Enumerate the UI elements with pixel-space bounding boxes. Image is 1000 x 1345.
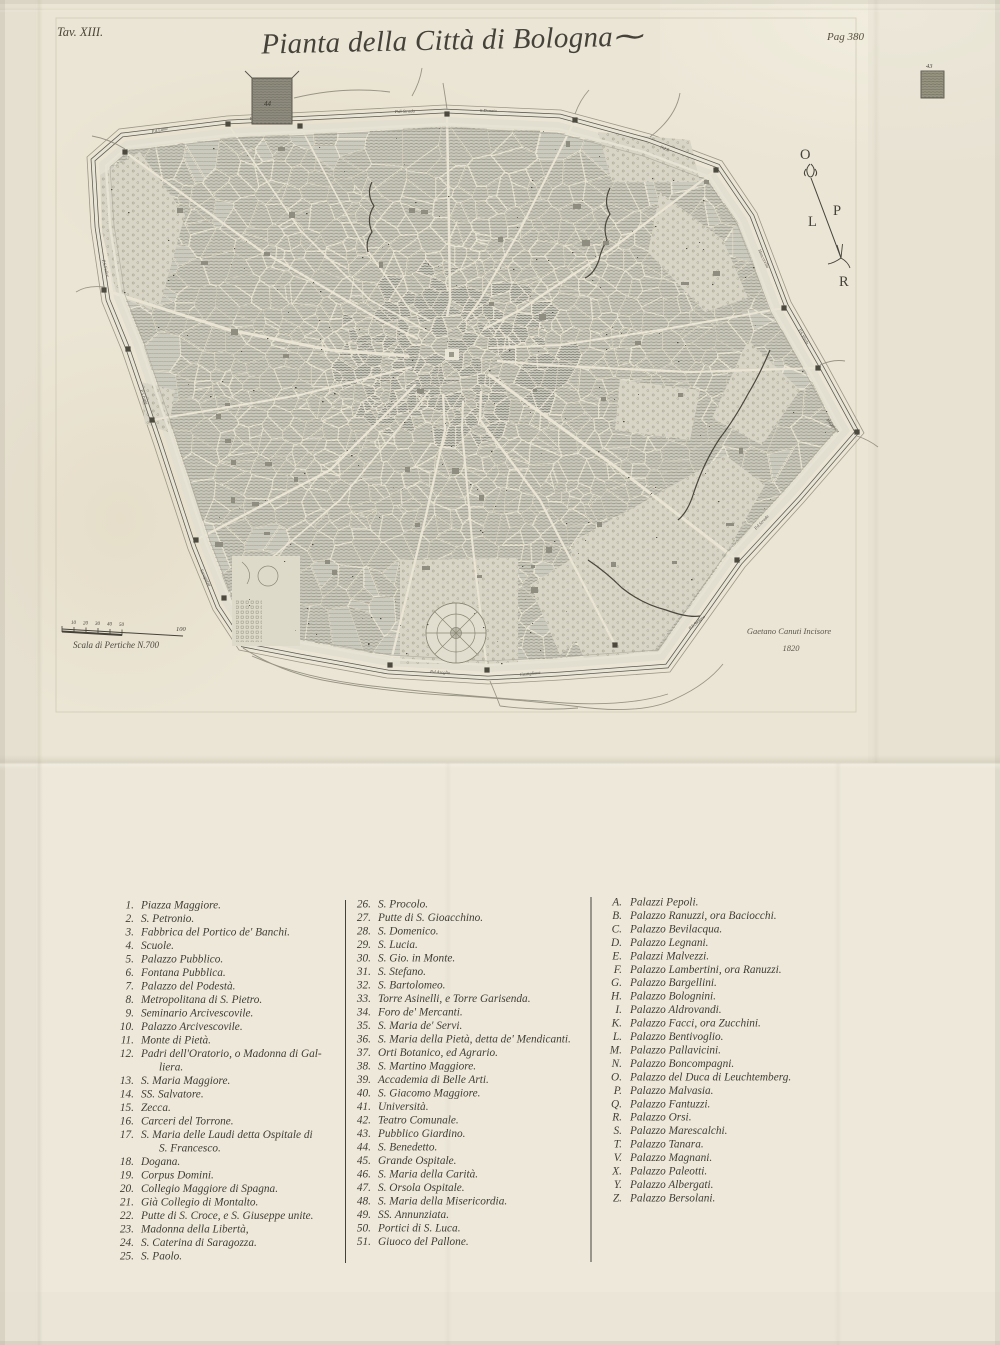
svg-text:S. Procolo.: S. Procolo. (378, 899, 428, 911)
svg-text:45.: 45. (357, 1155, 371, 1167)
svg-text:liera.: liera. (159, 1062, 183, 1074)
svg-text:Putte di S. Croce, e S. Giusep: Putte di S. Croce, e S. Giuseppe unite. (140, 1210, 313, 1222)
svg-text:7.: 7. (126, 981, 134, 993)
svg-text:50: 50 (119, 623, 125, 628)
svg-text:18.: 18. (120, 1156, 134, 1168)
svg-text:Palazzo Bolognini.: Palazzo Bolognini. (629, 991, 716, 1003)
svg-text:43: 43 (926, 63, 933, 70)
svg-text:Palazzi Pepoli.: Palazzi Pepoli. (629, 897, 698, 909)
svg-text:V.: V. (614, 1152, 622, 1164)
svg-text:Q.: Q. (611, 1098, 622, 1110)
svg-text:A.: A. (611, 897, 622, 909)
svg-text:S. Lucia.: S. Lucia. (378, 939, 418, 951)
svg-text:20: 20 (83, 622, 89, 627)
svg-text:14.: 14. (120, 1089, 134, 1101)
svg-text:P.: P. (613, 1085, 622, 1097)
svg-text:D.: D. (610, 937, 622, 949)
svg-text:21.: 21. (120, 1197, 134, 1209)
svg-text:41.: 41. (357, 1101, 371, 1113)
svg-text:50.: 50. (357, 1223, 371, 1235)
svg-text:Accademia di Belle Arti.: Accademia di Belle Arti. (377, 1074, 489, 1086)
svg-text:S.Donato: S.Donato (480, 108, 498, 113)
svg-text:51.: 51. (357, 1236, 371, 1248)
svg-text:Carceri del Torrone.: Carceri del Torrone. (141, 1116, 234, 1128)
svg-text:3.: 3. (125, 927, 134, 939)
svg-text:Palazzo Bersolani.: Palazzo Bersolani. (629, 1192, 715, 1204)
svg-text:SS. Salvatore.: SS. Salvatore. (141, 1089, 204, 1101)
svg-text:10.: 10. (120, 1021, 134, 1033)
svg-text:Fontana Pubblica.: Fontana Pubblica. (140, 967, 226, 979)
svg-text:23.: 23. (120, 1224, 134, 1236)
svg-text:Y.: Y. (614, 1179, 622, 1191)
svg-text:25.: 25. (120, 1251, 134, 1263)
svg-text:31.: 31. (356, 966, 371, 978)
svg-text:40: 40 (107, 623, 113, 628)
svg-text:O.: O. (611, 1071, 622, 1083)
svg-text:Fabbrica del Portico de' Banch: Fabbrica del Portico de' Banchi. (140, 927, 290, 939)
svg-text:Palazzo Magnani.: Palazzo Magnani. (629, 1152, 712, 1164)
svg-text:P: P (833, 203, 841, 219)
svg-text:Palazzo Pallavicini.: Palazzo Pallavicini. (629, 1045, 721, 1057)
svg-text:Monte di Pietà.: Monte di Pietà. (140, 1035, 211, 1047)
svg-text:L.: L. (612, 1031, 622, 1043)
svg-text:S. Orsola Ospitale.: S. Orsola Ospitale. (378, 1182, 465, 1194)
svg-text:S. Petronio.: S. Petronio. (141, 913, 194, 925)
svg-text:Grande Ospitale.: Grande Ospitale. (378, 1155, 456, 1167)
svg-text:12.: 12. (120, 1048, 134, 1060)
svg-text:Palazzo Arcivescovile.: Palazzo Arcivescovile. (140, 1021, 243, 1033)
svg-text:1.: 1. (126, 900, 134, 912)
svg-text:37.: 37. (356, 1047, 371, 1059)
svg-text:27.: 27. (357, 912, 371, 924)
svg-text:T.: T. (614, 1139, 622, 1151)
svg-text:Scala di Pertiche N.700: Scala di Pertiche N.700 (73, 640, 159, 650)
svg-text:Zecca.: Zecca. (141, 1102, 171, 1114)
svg-text:36.: 36. (356, 1034, 371, 1046)
svg-text:Z.: Z. (613, 1192, 622, 1204)
svg-text:Palazzo Marescalchi.: Palazzo Marescalchi. (629, 1125, 727, 1137)
svg-text:Palazzo Fantuzzi.: Palazzo Fantuzzi. (629, 1098, 710, 1110)
svg-text:Palazzo Aldrovandi.: Palazzo Aldrovandi. (629, 1004, 722, 1016)
svg-text:S. Maria della Pietà, detta de: S. Maria della Pietà, detta de' Mendican… (378, 1034, 571, 1046)
svg-text:38.: 38. (356, 1061, 371, 1073)
svg-text:SS. Annunziata.: SS. Annunziata. (378, 1209, 449, 1221)
svg-text:Giuoco del Pallone.: Giuoco del Pallone. (378, 1236, 469, 1248)
svg-text:2.: 2. (126, 913, 134, 925)
svg-text:Palazzo del Duca di Leuchtembe: Palazzo del Duca di Leuchtemberg. (629, 1071, 791, 1083)
svg-text:X.: X. (611, 1166, 622, 1178)
svg-text:Pubblico Giardino.: Pubblico Giardino. (377, 1128, 465, 1140)
svg-text:35.: 35. (356, 1020, 371, 1032)
svg-text:Madonna della Libertà,: Madonna della Libertà, (140, 1224, 249, 1236)
svg-text:Gaetano Canuti Incisore: Gaetano Canuti Incisore (747, 626, 831, 636)
svg-text:Torre Asinelli, e Torre Garise: Torre Asinelli, e Torre Garisenda. (378, 993, 531, 1005)
svg-text:Corpus Domini.: Corpus Domini. (141, 1170, 214, 1182)
svg-text:1820: 1820 (783, 643, 801, 653)
svg-text:S. Gio. in Monte.: S. Gio. in Monte. (378, 953, 455, 965)
svg-text:39.: 39. (356, 1074, 371, 1086)
svg-text:S.: S. (614, 1125, 622, 1137)
svg-text:S. Benedetto.: S. Benedetto. (378, 1142, 437, 1154)
svg-text:H.: H. (610, 991, 622, 1003)
svg-text:47.: 47. (357, 1182, 371, 1194)
svg-text:Teatro Comunale.: Teatro Comunale. (378, 1115, 459, 1127)
svg-text:Palazzo Pubblico.: Palazzo Pubblico. (140, 954, 223, 966)
svg-text:Putte di S. Gioacchino.: Putte di S. Gioacchino. (377, 912, 483, 924)
svg-text:Orti Botanico, ed Agrario.: Orti Botanico, ed Agrario. (378, 1047, 498, 1059)
svg-text:S. Stefano.: S. Stefano. (378, 966, 426, 978)
svg-text:11.: 11. (121, 1035, 134, 1047)
svg-text:S. Maria della Misericordia.: S. Maria della Misericordia. (378, 1196, 507, 1208)
svg-text:4.: 4. (126, 940, 134, 952)
svg-text:Foro de' Mercanti.: Foro de' Mercanti. (377, 1007, 463, 1019)
svg-text:Palazzo Ranuzzi, ora Baciocchi: Palazzo Ranuzzi, ora Baciocchi. (629, 910, 777, 922)
svg-text:S. Giacomo Maggiore.: S. Giacomo Maggiore. (378, 1088, 481, 1100)
svg-text:S. Maria de' Servi.: S. Maria de' Servi. (378, 1020, 462, 1032)
svg-text:O: O (800, 147, 810, 163)
svg-text:Pag 380: Pag 380 (826, 31, 864, 43)
svg-text:8.: 8. (126, 994, 134, 1006)
svg-text:S. Domenico.: S. Domenico. (378, 926, 439, 938)
svg-text:15.: 15. (120, 1102, 134, 1114)
svg-text:13.: 13. (120, 1075, 134, 1087)
svg-text:K.: K. (611, 1018, 622, 1030)
svg-text:Piazza Maggiore.: Piazza Maggiore. (140, 900, 221, 912)
svg-text:Seminario Arcivescovile.: Seminario Arcivescovile. (141, 1008, 253, 1020)
svg-text:Portici di S. Luca.: Portici di S. Luca. (377, 1223, 461, 1235)
svg-text:R.: R. (611, 1112, 622, 1124)
svg-text:Palazzo Orsi.: Palazzo Orsi. (629, 1112, 692, 1124)
svg-text:24.: 24. (120, 1237, 134, 1249)
svg-text:Dogana.: Dogana. (140, 1156, 180, 1168)
svg-text:28.: 28. (357, 926, 371, 938)
svg-text:9.: 9. (126, 1008, 134, 1020)
svg-text:S. Maria Maggiore.: S. Maria Maggiore. (141, 1075, 230, 1087)
svg-text:Palazzi Malvezzi.: Palazzi Malvezzi. (629, 950, 709, 962)
svg-text:49.: 49. (357, 1209, 371, 1221)
svg-text:Padri dell'Oratorio, o Madonna: Padri dell'Oratorio, o Madonna di Gal- (140, 1048, 322, 1060)
svg-text:E.: E. (611, 950, 622, 962)
svg-text:Già Collegio di Montalto.: Già Collegio di Montalto. (141, 1197, 258, 1209)
svg-text:Palazzo Tanara.: Palazzo Tanara. (629, 1139, 704, 1151)
svg-text:Palazzo Legnani.: Palazzo Legnani. (629, 937, 708, 949)
svg-text:44: 44 (264, 100, 272, 108)
svg-text:10: 10 (71, 621, 77, 626)
svg-text:Palazzo Facci, ora Zucchini.: Palazzo Facci, ora Zucchini. (629, 1018, 761, 1030)
svg-text:Palazzo Bargellini.: Palazzo Bargellini. (629, 977, 717, 989)
svg-text:33.: 33. (356, 993, 371, 1005)
svg-text:43.: 43. (357, 1128, 371, 1140)
svg-text:S. Martino Maggiore.: S. Martino Maggiore. (378, 1061, 476, 1073)
svg-text:30: 30 (95, 622, 101, 627)
svg-text:P.di Strada: P.di Strada (394, 108, 416, 114)
svg-text:42.: 42. (357, 1115, 371, 1127)
svg-text:16.: 16. (120, 1116, 134, 1128)
svg-text:S. Paolo.: S. Paolo. (141, 1251, 182, 1263)
svg-text:S. Maria della Carità.: S. Maria della Carità. (378, 1169, 478, 1181)
svg-text:Università.: Università. (378, 1101, 429, 1113)
svg-text:F.: F. (613, 964, 622, 976)
svg-text:Palazzo Boncompagni.: Palazzo Boncompagni. (629, 1058, 734, 1070)
svg-text:6.: 6. (126, 967, 134, 979)
svg-text:19.: 19. (120, 1170, 134, 1182)
svg-text:G.: G. (611, 977, 622, 989)
svg-text:Palazzo Bentivoglio.: Palazzo Bentivoglio. (629, 1031, 724, 1043)
svg-text:Tav. XIII.: Tav. XIII. (57, 25, 103, 39)
svg-text:N.: N. (611, 1058, 622, 1070)
svg-text:30.: 30. (356, 953, 371, 965)
svg-text:Metropolitana di S. Pietro.: Metropolitana di S. Pietro. (140, 994, 262, 1006)
svg-text:Palazzo Malvasia.: Palazzo Malvasia. (629, 1085, 713, 1097)
svg-text:C.: C. (612, 923, 622, 935)
svg-text:48.: 48. (357, 1196, 371, 1208)
svg-text:40.: 40. (357, 1088, 371, 1100)
svg-text:L: L (808, 214, 817, 230)
svg-text:S. Maria delle Laudi detta Osp: S. Maria delle Laudi detta Ospitale di (141, 1129, 313, 1141)
svg-text:S. Bartolomeo.: S. Bartolomeo. (378, 980, 445, 992)
svg-text:44.: 44. (357, 1142, 371, 1154)
svg-text:B.: B. (612, 910, 622, 922)
svg-text:32.: 32. (356, 980, 371, 992)
svg-text:Palazzo del Podestà.: Palazzo del Podestà. (140, 981, 235, 993)
svg-text:Collegio Maggiore di Spagna.: Collegio Maggiore di Spagna. (141, 1183, 278, 1195)
svg-text:Palazzo Lambertini, ora Ranuzz: Palazzo Lambertini, ora Ranuzzi. (629, 964, 782, 976)
svg-text:Palazzo Albergati.: Palazzo Albergati. (629, 1179, 713, 1191)
svg-text:Palazzo Bevilacqua.: Palazzo Bevilacqua. (629, 923, 722, 935)
svg-text:22.: 22. (120, 1210, 134, 1222)
svg-text:M.: M. (609, 1045, 622, 1057)
svg-text:I.: I. (614, 1004, 622, 1016)
svg-text:S. Francesco.: S. Francesco. (159, 1143, 221, 1155)
svg-text:26.: 26. (357, 899, 371, 911)
svg-text:46.: 46. (357, 1169, 371, 1181)
svg-text:S. Caterina di Saragozza.: S. Caterina di Saragozza. (141, 1237, 257, 1249)
svg-text:R: R (839, 274, 849, 290)
svg-text:29.: 29. (357, 939, 371, 951)
svg-text:17.: 17. (120, 1129, 134, 1141)
svg-text:Scuole.: Scuole. (141, 940, 174, 952)
svg-text:34.: 34. (356, 1007, 371, 1019)
svg-text:5.: 5. (126, 954, 134, 966)
svg-text:20.: 20. (120, 1183, 134, 1195)
svg-text:100: 100 (176, 626, 187, 633)
svg-text:Palazzo Paleotti.: Palazzo Paleotti. (629, 1166, 707, 1178)
